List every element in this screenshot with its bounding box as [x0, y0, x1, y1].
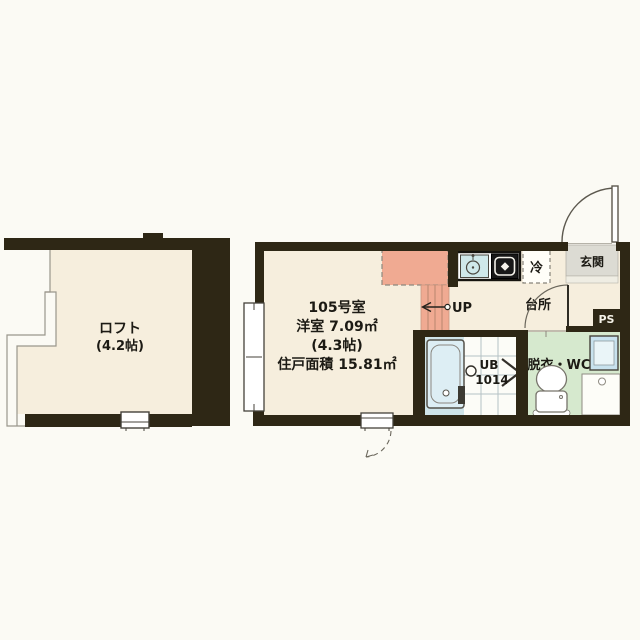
main-left-window-icon	[244, 303, 264, 411]
loft-wall-top	[4, 238, 192, 250]
washbasin-icon	[590, 336, 618, 370]
bathroom-label-size: 1014	[475, 373, 508, 387]
wall-kitchen-washroom	[566, 326, 620, 332]
loft-wall-top-notch	[143, 233, 163, 239]
bathroom-unit-bath: UB 1014	[425, 337, 519, 415]
main-wall-left-upper	[255, 242, 264, 307]
washing-machine-pan-icon	[582, 374, 620, 415]
wall-stub-kitchen	[448, 251, 458, 287]
main-room-number-label: 105号室	[308, 299, 365, 316]
entrance-step	[566, 276, 618, 283]
refrigerator-label: 冷	[530, 260, 543, 276]
bathroom-label-ub: UB	[480, 358, 499, 372]
main-room-total-area-label: 住戸面積 15.81㎡	[277, 356, 396, 373]
washroom-wc: 脱衣・WC	[528, 331, 620, 416]
main-wall-right	[620, 242, 630, 426]
stairs-up-label: UP	[452, 301, 472, 316]
loft-window-icon	[121, 412, 149, 431]
refrigerator-box: 冷	[523, 250, 550, 283]
main-room-size-label: (4.3帖)	[311, 337, 363, 354]
sink-icon	[461, 254, 489, 278]
loft-overhang-dashed-area	[382, 249, 448, 285]
main-wall-top	[255, 242, 568, 251]
wall-bath-left	[413, 330, 425, 415]
loft-wall-right	[192, 238, 230, 426]
loft-name-label: ロフト	[99, 321, 141, 337]
main-wall-bottom	[253, 415, 630, 426]
pipe-space-label: PS	[599, 313, 615, 326]
entrance-label: 玄関	[580, 254, 604, 269]
loft-size-label: (4.2帖)	[96, 338, 144, 354]
toilet-icon	[533, 366, 570, 417]
wall-bath-washroom	[516, 332, 528, 415]
bathtub-icon	[427, 340, 465, 408]
floor-plan-page: ロフト (4.2帖) 玄関 UP	[0, 0, 640, 640]
wall-bath-top	[413, 330, 528, 337]
kitchen-counter	[457, 252, 520, 280]
stove-icon	[492, 254, 519, 279]
pipe-space-box: PS	[593, 309, 620, 328]
main-room-type-label: 洋室 7.09㎡	[296, 318, 377, 335]
loft-wall-bottom	[25, 414, 192, 427]
floor-plan-drawing: ロフト (4.2帖) 玄関 UP	[0, 0, 640, 640]
